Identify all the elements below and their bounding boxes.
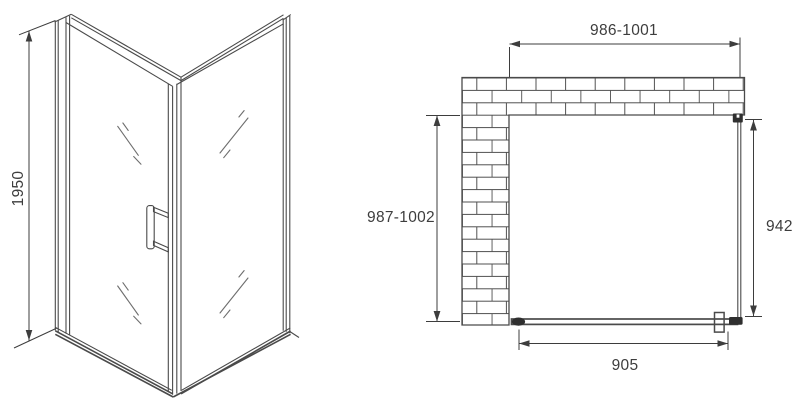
- technical-drawing: 1950: [0, 0, 800, 411]
- plan-right-dimension-label: 942: [766, 218, 793, 235]
- frame-right-post: [283, 15, 299, 338]
- witness-line-top: [19, 21, 56, 35]
- arrow-left-icon: [510, 41, 521, 48]
- glass-mark-right-lower: [220, 271, 248, 318]
- plan-left-dimension: 987-1002: [367, 116, 460, 322]
- door-handle-icon: [147, 206, 169, 252]
- glass-mark-left-upper: [118, 123, 141, 164]
- arrow-up-icon: [750, 120, 757, 131]
- handle-bottom-stub: [154, 241, 169, 252]
- plan-view: 986-1001 987-1002 942 905: [367, 22, 793, 374]
- glass-panel-plan: [733, 114, 743, 318]
- plan-top-dimension: 986-1001: [510, 22, 741, 77]
- bottom-rail-left: [55, 327, 173, 397]
- plan-bottom-dimension-label: 905: [612, 357, 639, 374]
- arrow-right-icon: [718, 340, 729, 347]
- bottom-rail-right: [173, 328, 290, 397]
- arrow-left-icon: [519, 340, 530, 347]
- arrow-up-icon: [26, 31, 33, 42]
- door-leaf: [512, 319, 738, 324]
- door-top-rail: [66, 14, 181, 86]
- panel-top-rail: [177, 15, 284, 85]
- glass-reflection-marks: [118, 111, 248, 324]
- hinge-pivot: [512, 318, 525, 326]
- arrow-down-icon: [26, 330, 33, 341]
- drawing-canvas: 1950: [0, 0, 800, 411]
- glass-mark-right-upper: [220, 111, 248, 158]
- height-dimension-label: 1950: [10, 171, 27, 207]
- door-plan: [512, 313, 743, 333]
- plan-bottom-dimension: 905: [519, 330, 728, 375]
- plan-top-dimension-label: 986-1001: [590, 22, 658, 39]
- door-frame: [55, 14, 299, 397]
- arrow-down-icon: [750, 306, 757, 317]
- wall-bracket-slot: [737, 115, 740, 118]
- witness-line-bottom: [14, 328, 57, 348]
- frame-center-post: [168, 77, 181, 395]
- arrow-up-icon: [434, 116, 441, 127]
- corner-bracket: [729, 317, 743, 325]
- front-view: 1950: [10, 14, 299, 397]
- plan-left-dimension-label: 987-1002: [367, 209, 435, 226]
- plan-right-dimension: 942: [745, 120, 793, 317]
- arrow-right-icon: [730, 41, 741, 48]
- arrow-down-icon: [434, 311, 441, 322]
- glass-mark-left-lower: [118, 283, 141, 324]
- height-dimension: 1950: [10, 21, 57, 349]
- brick-wall: [462, 78, 745, 326]
- frame-left-post: [55, 14, 72, 335]
- handle-top-stub: [154, 207, 169, 217]
